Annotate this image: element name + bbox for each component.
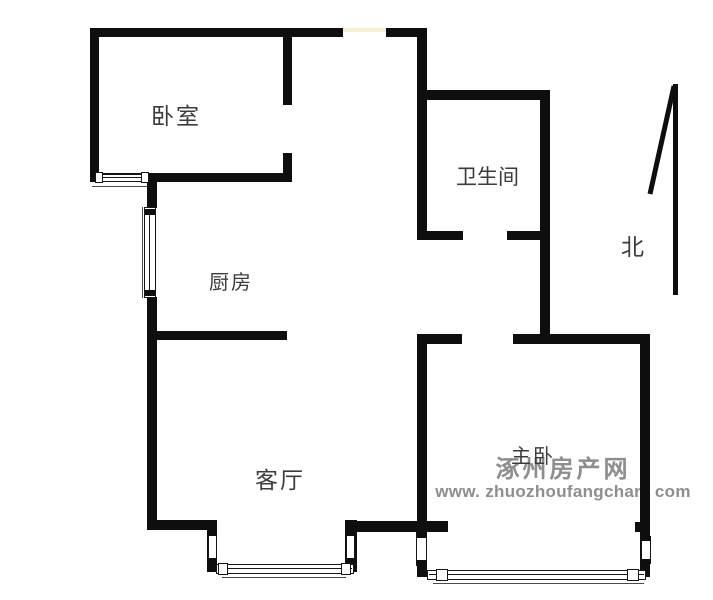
living-bay-window-right-cap-top	[346, 531, 355, 536]
wall-bathroom-bottom-east	[507, 231, 550, 240]
bedroom-window	[97, 174, 147, 182]
north-arrow-icon	[640, 78, 685, 300]
top-window-highlight	[343, 28, 386, 32]
kitchen-window	[144, 207, 156, 298]
master-bay-window-cap-left	[436, 569, 448, 581]
bedroom-window-sill	[92, 186, 150, 187]
room-label-bathroom: 卫生间	[456, 161, 519, 191]
wall-bathroom-top	[417, 90, 550, 100]
wall-bedroom-left	[90, 28, 99, 182]
bedroom-window-cap-right	[141, 172, 149, 183]
master-bay-window-cap-right	[627, 569, 639, 581]
floorplan-canvas: 卧室 厨房 卫生间 客厅 主卧 北 涿州房产网 www. zhuozhoufan…	[0, 0, 713, 600]
room-label-bedroom: 卧室	[151, 97, 201, 131]
room-label-master-bedroom: 主卧	[511, 440, 555, 469]
watermark: 涿州房产网 www. zhuozhoufangchan. com	[428, 457, 698, 501]
living-bay-window-left-cap-top	[208, 531, 217, 536]
master-bay-window-left-cap-bottom	[417, 560, 427, 566]
living-bay-window-cap-right	[341, 563, 351, 575]
wall-kitchen-left-upper	[147, 182, 157, 208]
kitchen-window-cap-top	[145, 209, 155, 215]
wall-kitchen-bottom	[155, 331, 287, 340]
wall-bathroom-bottom-west	[417, 231, 463, 240]
wall-hallway-right	[417, 28, 427, 240]
master-bay-window-right-cap-bottom	[641, 559, 651, 564]
wall-bedroom-right-lower	[283, 153, 292, 182]
north-label: 北	[621, 228, 646, 262]
kitchen-window-sill	[142, 207, 143, 298]
master-bay-window-sill	[433, 583, 644, 584]
master-bay-window-bottom	[427, 570, 646, 580]
kitchen-window-cap-bottom	[145, 290, 155, 296]
watermark-site-url: www. zhuozhoufangchan. com	[428, 483, 698, 501]
wall-bedroom-right-upper	[283, 37, 292, 105]
bedroom-window-cap-left	[95, 172, 103, 183]
master-bay-window-left-cap-top	[417, 532, 427, 538]
master-bay-window-right-cap-top	[641, 536, 651, 541]
wall-master-bottom-stub	[635, 522, 650, 532]
living-bay-window-bottom	[216, 564, 354, 574]
living-bay-window-left-cap-bottom	[208, 558, 217, 563]
wall-bathroom-right	[540, 92, 550, 344]
room-label-living-room: 客厅	[255, 461, 305, 495]
watermark-site-name: 涿州房产网	[428, 457, 698, 483]
room-label-kitchen: 厨房	[209, 266, 253, 295]
living-bay-window-cap-left	[218, 563, 228, 575]
wall-top-west	[90, 28, 343, 37]
wall-entry-bottom	[345, 521, 448, 532]
living-bay-window-sill	[222, 577, 346, 578]
wall-master-top-east	[513, 334, 650, 344]
